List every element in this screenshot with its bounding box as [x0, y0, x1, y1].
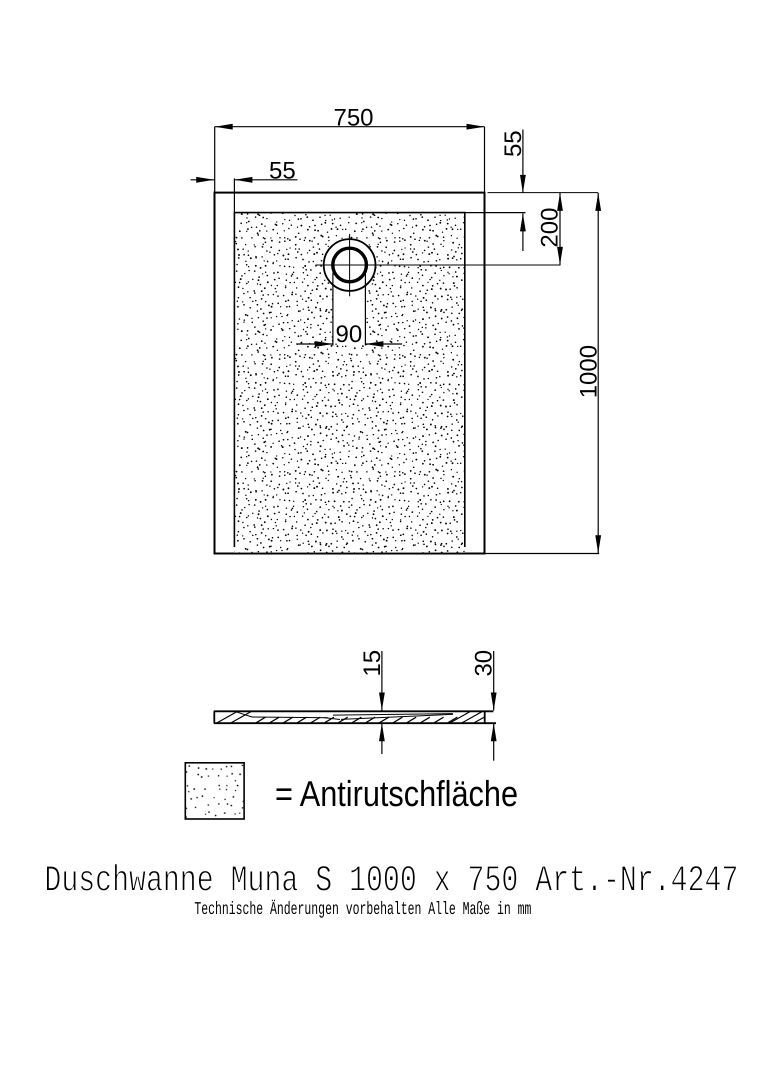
svg-text:= Antirutschfläche: = Antirutschfläche: [275, 773, 518, 814]
svg-text:30: 30: [471, 650, 498, 677]
svg-text:55: 55: [269, 158, 296, 185]
svg-text:Duschwanne Muna S 1000 x 750 A: Duschwanne Muna S 1000 x 750 Art.-Nr.424…: [44, 861, 738, 903]
svg-text:55: 55: [500, 130, 527, 157]
svg-text:1000: 1000: [576, 345, 603, 398]
svg-text:90: 90: [336, 321, 363, 348]
svg-text:750: 750: [333, 104, 373, 131]
svg-text:15: 15: [359, 650, 386, 677]
svg-text:Technische Änderungen vorbehal: Technische Änderungen vorbehalten Alle M…: [194, 899, 531, 920]
svg-text:200: 200: [536, 208, 563, 248]
